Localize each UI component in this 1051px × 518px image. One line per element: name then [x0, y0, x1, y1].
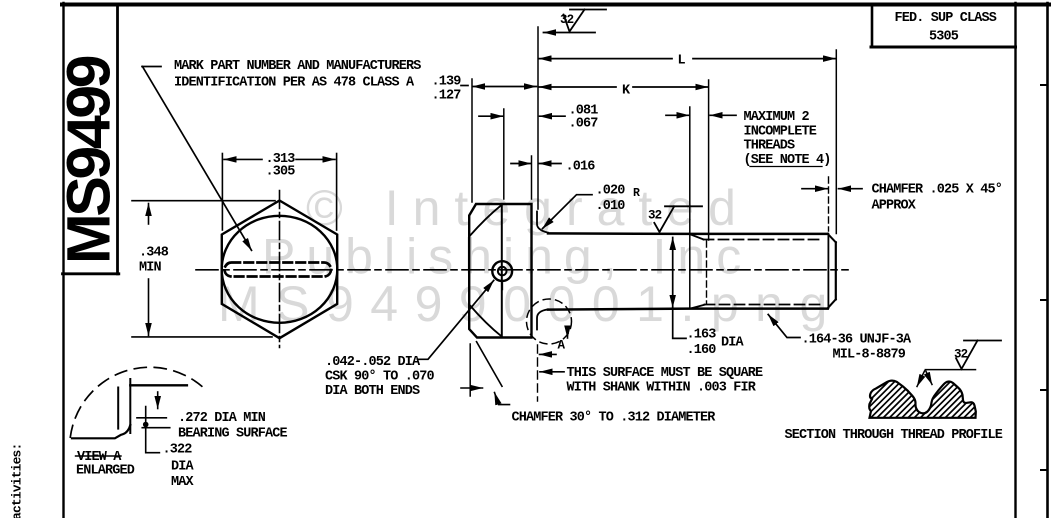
svg-text:.348: .348 — [139, 246, 169, 261]
svg-text:32: 32 — [648, 209, 662, 223]
svg-text:MIN: MIN — [139, 261, 162, 276]
svg-text:MAX: MAX — [171, 475, 195, 490]
svg-text:MS9499: MS9499 — [55, 56, 123, 264]
svg-text:.322: .322 — [163, 443, 193, 458]
svg-text:R: R — [633, 187, 640, 200]
svg-text:.042-.052 DIA: .042-.052 DIA — [325, 355, 421, 370]
svg-text:A: A — [558, 339, 566, 353]
svg-text:CSK 90° TO .070: CSK 90° TO .070 — [325, 370, 435, 385]
svg-text:.127: .127 — [432, 89, 462, 104]
svg-text:DIA BOTH ENDS: DIA BOTH ENDS — [325, 384, 420, 399]
svg-text:(SEE NOTE 4): (SEE NOTE 4) — [744, 153, 831, 168]
svg-text:K: K — [622, 84, 631, 99]
svg-text:WITH SHANK WITHIN .003 FIR: WITH SHANK WITHIN .003 FIR — [567, 381, 757, 396]
svg-text:BEARING SURFACE: BEARING SURFACE — [178, 427, 288, 442]
svg-text:ENLARGED: ENLARGED — [76, 464, 135, 479]
svg-text:.139: .139 — [432, 75, 462, 90]
svg-text:APPROX: APPROX — [872, 199, 917, 214]
svg-text:.010: .010 — [596, 199, 626, 214]
svg-text:.020: .020 — [596, 184, 626, 199]
svg-text:FED. SUP CLASS: FED. SUP CLASS — [895, 11, 997, 26]
svg-text:DIA: DIA — [721, 336, 745, 351]
svg-text:activities:: activities: — [10, 444, 25, 518]
svg-text:CHAMFER .025 X 45°: CHAMFER .025 X 45° — [872, 183, 1003, 198]
svg-text:MAXIMUM 2: MAXIMUM 2 — [744, 110, 810, 125]
svg-text:.160: .160 — [687, 343, 717, 358]
svg-text:IDENTIFICATION PER AS 478 CLAS: IDENTIFICATION PER AS 478 CLASS A — [174, 76, 415, 91]
svg-text:INCOMPLETE: INCOMPLETE — [744, 125, 817, 140]
svg-text:THIS SURFACE MUST BE SQUARE: THIS SURFACE MUST BE SQUARE — [567, 366, 764, 381]
svg-text:.272 DIA MIN: .272 DIA MIN — [178, 411, 266, 426]
svg-text:DIA: DIA — [171, 460, 195, 475]
svg-text:32: 32 — [954, 348, 968, 362]
svg-text:.067: .067 — [569, 117, 599, 132]
svg-text:.016: .016 — [566, 160, 596, 175]
svg-text:5305: 5305 — [929, 30, 959, 45]
svg-text:SECTION THROUGH THREAD PROFILE: SECTION THROUGH THREAD PROFILE — [785, 428, 1003, 443]
svg-text:CHAMFER 30° TO .312 DIAMETER: CHAMFER 30° TO .312 DIAMETER — [512, 411, 717, 426]
svg-text:THREADS: THREADS — [744, 139, 796, 154]
svg-text:L: L — [678, 54, 686, 69]
svg-text:MIL-8-8879: MIL-8-8879 — [833, 348, 906, 363]
svg-text:32: 32 — [560, 13, 574, 27]
svg-text:.305: .305 — [266, 165, 296, 180]
svg-text:.164-36 UNJF-3A: .164-36 UNJF-3A — [802, 333, 913, 348]
svg-text:MARK PART NUMBER AND MANUFACTU: MARK PART NUMBER AND MANUFACTURERS — [174, 59, 421, 74]
svg-text:.163: .163 — [687, 328, 717, 343]
